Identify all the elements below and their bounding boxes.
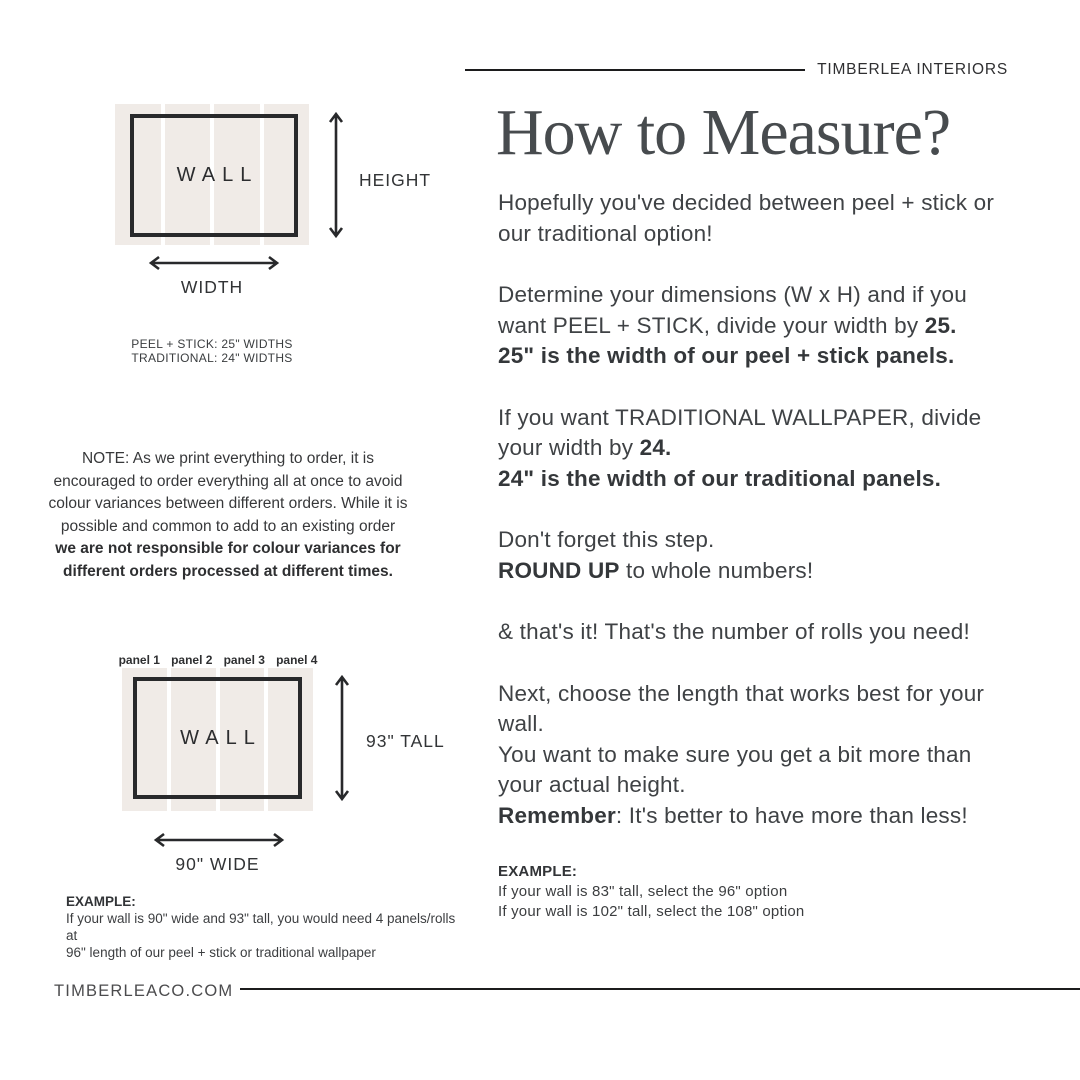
note-bold-line: we are not responsible for colour varian… <box>46 538 410 561</box>
text-run: Determine your dimensions (W x H) and if… <box>498 282 967 338</box>
width-arrow-icon <box>148 253 280 273</box>
wall-outline-diagram1: WALL <box>130 114 298 237</box>
paragraph-peel-stick: Determine your dimensions (W x H) and if… <box>498 280 1010 372</box>
example-line: If your wall is 83" tall, select the 96"… <box>498 882 1010 902</box>
footer-rule <box>240 988 1080 990</box>
wide-label: 90" WIDE <box>122 854 313 875</box>
panel-number-labels: panel 1 panel 2 panel 3 panel 4 <box>113 653 323 667</box>
page: TIMBERLEA INTERIORS How to Measure? WALL… <box>0 0 1080 1080</box>
text-run-bold: 25. <box>925 313 957 338</box>
example-heading: EXAMPLE: <box>498 862 1010 882</box>
tall-arrow-icon <box>332 674 352 802</box>
traditional-widths: TRADITIONAL: 24" WIDTHS <box>105 351 319 365</box>
panel-4-label: panel 4 <box>271 653 324 667</box>
left-example-block: EXAMPLE: If your wall is 90" wide and 93… <box>66 893 466 961</box>
brand-name: TIMBERLEA INTERIORS <box>780 61 1008 79</box>
tall-label: 93" TALL <box>366 731 445 752</box>
wide-arrow-icon <box>153 830 285 850</box>
height-arrow-icon <box>326 111 346 239</box>
example-line: If your wall is 90" wide and 93" tall, y… <box>66 910 466 944</box>
page-title: How to Measure? <box>496 95 950 171</box>
text-run: : It's better to have more than less! <box>616 803 968 828</box>
paragraph-intro: Hopefully you've decided between peel + … <box>498 188 1010 249</box>
paragraph-length: Next, choose the length that works best … <box>498 679 1010 832</box>
text-run: If you want TRADITIONAL WALLPAPER, divid… <box>498 405 981 461</box>
wall-outline-diagram2: WALL <box>133 677 302 799</box>
paragraph-round-up: Don't forget this step. ROUND UP to whol… <box>498 525 1010 586</box>
colour-variance-note: NOTE: As we print everything to order, i… <box>46 448 410 583</box>
height-label: HEIGHT <box>359 170 431 191</box>
text-run: & that's it! That's the number of rolls … <box>498 619 970 644</box>
panel-1-label: panel 1 <box>113 653 166 667</box>
example-line: 96" length of our peel + stick or tradit… <box>66 944 466 961</box>
peel-stick-widths: PEEL + STICK: 25" WIDTHS <box>105 337 319 351</box>
text-run-bold: ROUND UP <box>498 558 620 583</box>
text-run: Hopefully you've decided between peel + … <box>498 190 994 246</box>
text-run: You want to make sure you get a bit more… <box>498 742 971 798</box>
text-run: to whole numbers! <box>620 558 814 583</box>
instructions-column: Hopefully you've decided between peel + … <box>498 188 1010 922</box>
panel-3-label: panel 3 <box>218 653 271 667</box>
example-heading: EXAMPLE: <box>66 893 466 910</box>
panel-widths-note: PEEL + STICK: 25" WIDTHS TRADITIONAL: 24… <box>105 337 319 365</box>
text-run: Next, choose the length that works best … <box>498 681 984 737</box>
note-line: encouraged to order everything all at on… <box>46 471 410 494</box>
wall-label: WALL <box>170 164 259 187</box>
header-rule <box>465 69 805 71</box>
note-line: colour variances between different order… <box>46 493 410 516</box>
text-run-bold: Remember <box>498 803 616 828</box>
text-run: Don't forget this step. <box>498 527 715 552</box>
note-line: possible and common to add to an existin… <box>46 516 410 539</box>
note-bold-line: different orders processed at different … <box>46 561 410 584</box>
right-example-block: EXAMPLE: If your wall is 83" tall, selec… <box>498 862 1010 922</box>
panel-2-label: panel 2 <box>166 653 219 667</box>
paragraph-thats-it: & that's it! That's the number of rolls … <box>498 617 1010 648</box>
wall-label: WALL <box>173 727 262 750</box>
example-line: If your wall is 102" tall, select the 10… <box>498 902 1010 922</box>
paragraph-traditional: If you want TRADITIONAL WALLPAPER, divid… <box>498 403 1010 495</box>
text-run-bold: 25" is the width of our peel + stick pan… <box>498 343 954 368</box>
text-run-bold: 24. <box>640 435 672 460</box>
text-run-bold: 24" is the width of our traditional pane… <box>498 466 941 491</box>
width-label: WIDTH <box>115 277 309 298</box>
website-url: TIMBERLEACO.COM <box>54 982 233 1001</box>
note-line: NOTE: As we print everything to order, i… <box>46 448 410 471</box>
